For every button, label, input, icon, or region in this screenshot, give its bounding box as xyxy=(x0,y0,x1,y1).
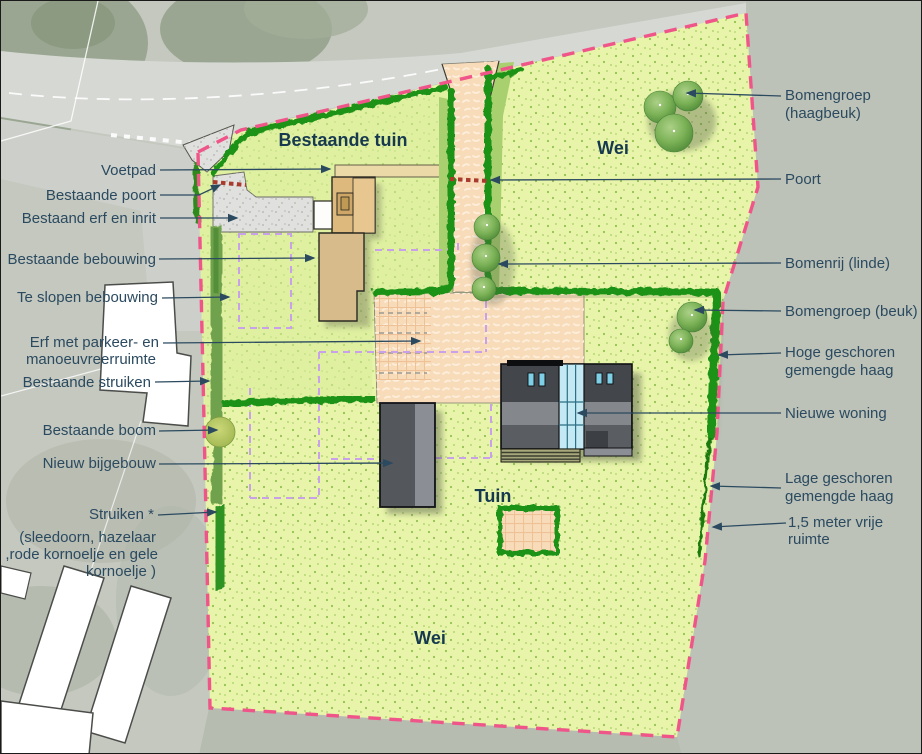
new-house-foot xyxy=(584,448,632,456)
label-te-slopen-bebouwing: Te slopen bebouwing xyxy=(17,289,158,306)
new-house-glass-strip xyxy=(559,364,584,449)
label-lage-haag-1: Lage geschoren xyxy=(785,470,893,487)
site-plan: Bestaande tuin Wei Tuin Wei Voetpad Best… xyxy=(0,0,922,754)
label-poort: Poort xyxy=(785,171,822,188)
window xyxy=(596,373,602,384)
label-lage-haag-2: gemengde haag xyxy=(785,488,893,505)
hedge-shadow xyxy=(490,296,717,297)
label-erf-parkeer-2: manoeuvreerruimte xyxy=(26,351,156,368)
label-bestaand-erf-en-inrit: Bestaand erf en inrit xyxy=(22,210,157,227)
tree-dot xyxy=(485,255,487,257)
linde-tree xyxy=(472,244,500,272)
hoge-geschoren-haag xyxy=(711,294,717,435)
linde-tree xyxy=(472,277,496,301)
window xyxy=(528,373,534,386)
area-label-wei-top: Wei xyxy=(597,138,629,158)
label-erf-parkeer-1: Erf met parkeer- en xyxy=(30,334,159,351)
label-bomenrij-linde: Bomenrij (linde) xyxy=(785,255,890,272)
label-struiken-soorten-3: kornoelje ) xyxy=(86,563,156,580)
existing-annex xyxy=(314,201,332,229)
label-bestaande-boom: Bestaande boom xyxy=(43,422,156,439)
label-vrije-ruimte-2: ruimte xyxy=(788,531,830,548)
window xyxy=(607,373,613,384)
label-nieuwe-woning: Nieuwe woning xyxy=(785,405,887,422)
beuk-tree xyxy=(677,302,707,332)
parking-grid xyxy=(376,294,431,380)
beuk-tree xyxy=(669,329,693,353)
label-bomengroep-haagbeuk-2: (haagbeuk) xyxy=(785,105,861,122)
label-struiken: Struiken * xyxy=(89,506,154,523)
bestaande-boom-tree xyxy=(205,417,235,447)
label-vrije-ruimte-1: 1,5 meter vrije xyxy=(788,514,883,531)
tree-dot xyxy=(691,314,693,316)
haagbeuk-tree xyxy=(655,114,693,152)
nieuwe-struiken-band xyxy=(218,505,222,589)
existing-house-upper-right xyxy=(353,178,375,233)
existing-house-lower xyxy=(319,233,364,321)
area-label-tuin: Tuin xyxy=(475,486,512,506)
voetpad-path xyxy=(335,165,453,177)
label-hoge-haag-2: gemengde haag xyxy=(785,362,893,379)
label-bomengroep-haagbeuk-1: Bomengroep xyxy=(785,87,871,104)
label-hoge-haag-1: Hoge geschoren xyxy=(785,344,895,361)
site-plan-svg: Bestaande tuin Wei Tuin Wei Voetpad Best… xyxy=(1,1,922,754)
label-bomengroep-beuk: Bomengroep (beuk) xyxy=(785,303,918,320)
linde-tree xyxy=(474,214,500,240)
tree-dot xyxy=(659,104,661,106)
label-bestaande-poort: Bestaande poort xyxy=(46,187,157,204)
new-house-inset xyxy=(586,431,608,448)
tree-dot xyxy=(680,338,682,340)
label-voetpad: Voetpad xyxy=(101,162,156,179)
label-struiken-soorten-1: (sleedoorn, hazelaar xyxy=(19,529,156,546)
outbuilding-roof-strip xyxy=(415,404,434,506)
label-nieuw-bijgebouw: Nieuw bijgebouw xyxy=(43,455,157,472)
existing-house-court-inner xyxy=(341,197,349,210)
tree-dot xyxy=(483,286,485,288)
tree-dot xyxy=(486,224,488,226)
label-bestaande-struiken: Bestaande struiken xyxy=(23,374,151,391)
bestaande-struiken-dark xyxy=(215,227,217,293)
tree-dot xyxy=(673,130,675,132)
label-struiken-soorten-2: ,rode kornoelje en gele xyxy=(5,546,158,563)
hedged-garden-grid xyxy=(500,508,557,553)
haagbeuk-tree xyxy=(673,81,703,111)
new-house-roof-bar xyxy=(507,360,563,366)
shrub-top xyxy=(195,163,199,223)
area-label-bestaande-tuin: Bestaande tuin xyxy=(278,130,407,150)
area-label-wei-bottom: Wei xyxy=(414,628,446,648)
label-bestaande-bebouwing: Bestaande bebouwing xyxy=(8,251,156,268)
window xyxy=(539,373,545,386)
